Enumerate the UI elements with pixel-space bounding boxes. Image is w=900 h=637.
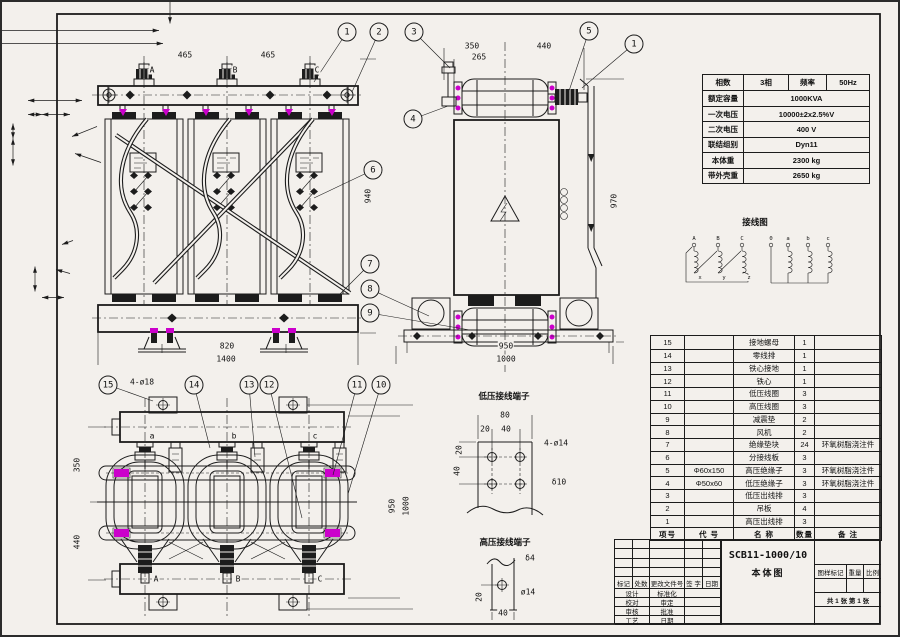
parts-cell-name: 风机 xyxy=(733,426,794,438)
sig-label: 工艺 xyxy=(615,616,650,625)
scale-label: 比例 xyxy=(864,565,881,579)
parts-cell-no: 15 xyxy=(651,336,684,349)
drawing-name: 本体图 xyxy=(722,566,814,579)
parts-cell-remark xyxy=(814,414,881,426)
parts-cell-remark xyxy=(814,490,881,502)
parts-cell-remark xyxy=(814,516,881,528)
parts-cell-code xyxy=(684,414,733,426)
parts-cell-code xyxy=(684,426,733,438)
parts-cell-qty: 24 xyxy=(794,439,814,451)
parts-cell-code xyxy=(684,452,733,464)
spec-label: 额定容量 xyxy=(703,91,743,105)
parts-cell-name: 高压出线排 xyxy=(733,516,794,528)
parts-cell-qty: 3 xyxy=(794,388,814,400)
spec-label: 本体重 xyxy=(703,153,743,167)
parts-cell-qty: 2 xyxy=(794,414,814,426)
parts-cell-qty: 3 xyxy=(794,401,814,413)
product-model: SCB11-1000/10 xyxy=(722,550,814,561)
parts-cell-name: 高压绝缘子 xyxy=(733,465,794,477)
spec-label: 联结组别 xyxy=(703,138,743,152)
parts-row: 10高压线圈3 xyxy=(651,400,881,413)
parts-cell-remark: 环氧树脂浇注件 xyxy=(814,439,881,451)
parts-cell-remark xyxy=(814,336,881,349)
parts-cell-qty: 3 xyxy=(794,465,814,477)
plan-view xyxy=(2,70,413,617)
spec-value: 10000±2x2.5%V xyxy=(743,107,869,121)
parts-row: 9减震垫2 xyxy=(651,413,881,426)
parts-cell-remark xyxy=(814,503,881,515)
parts-cell-name: 铁心 xyxy=(733,375,794,387)
spec-label: 一次电压 xyxy=(703,107,743,121)
parts-cell-name: 吊板 xyxy=(733,503,794,515)
spec-table: 相数 3相 频率 50Hz 额定容量1000KVA 一次电压10000±2x2.… xyxy=(702,74,870,184)
parts-cell-no: 13 xyxy=(651,363,684,375)
spec-value: 400 V xyxy=(743,122,869,136)
parts-cell-name: 高压线圈 xyxy=(733,401,794,413)
spec-value: 2650 kg xyxy=(743,169,869,183)
parts-row: 4Φ50x60低压绝缘子3环氧树脂浇注件 xyxy=(651,476,881,489)
parts-cell-remark xyxy=(814,375,881,387)
parts-cell-qty: 3 xyxy=(794,452,814,464)
parts-cell-code xyxy=(684,388,733,400)
front-view xyxy=(2,2,376,365)
sig-label: 审定 xyxy=(650,598,685,607)
parts-cell-remark: 环氧树脂浇注件 xyxy=(814,465,881,477)
spec-row: 二次电压400 V xyxy=(703,121,869,136)
parts-cell-code xyxy=(684,516,733,528)
parts-cell-remark xyxy=(814,452,881,464)
parts-cell-name: 低压线圈 xyxy=(733,388,794,400)
sig-label: 日期 xyxy=(650,616,685,625)
sig-label: 批准 xyxy=(650,607,685,616)
signature-rows: 设计标准化 校对审定 审核批准 工艺日期 xyxy=(615,589,721,625)
parts-row: 2吊板4 xyxy=(651,502,881,515)
parts-cell-code xyxy=(684,401,733,413)
title-block-right: 图样标记 重量 比例 共 1 张 第 1 张 xyxy=(815,540,881,625)
parts-cell-name: 分接线板 xyxy=(733,452,794,464)
sig-label: 设计 xyxy=(615,589,650,598)
parts-cell-remark xyxy=(814,401,881,413)
parts-cell-no: 3 xyxy=(651,490,684,502)
parts-table: 15接地螺母114零线排113铁心接地112铁心111低压线圈310高压线圈39… xyxy=(650,335,882,541)
parts-cell-no: 7 xyxy=(651,439,684,451)
parts-cell-qty: 1 xyxy=(794,336,814,349)
spec-row: 本体重2300 kg xyxy=(703,152,869,167)
parts-cell-code: Φ60x150 xyxy=(684,465,733,477)
parts-cell-code xyxy=(684,490,733,502)
parts-cell-code xyxy=(684,350,733,362)
spec-value: 1000KVA xyxy=(743,91,869,105)
sheet-count: 共 1 张 第 1 张 xyxy=(815,593,881,607)
col-count: 处数 xyxy=(633,577,650,589)
parts-cell-qty: 3 xyxy=(794,477,814,489)
side-view xyxy=(2,2,624,372)
parts-cell-remark xyxy=(814,350,881,362)
parts-cell-remark xyxy=(814,388,881,400)
spec-value: Dyn11 xyxy=(743,138,869,152)
parts-cell-no: 8 xyxy=(651,426,684,438)
parts-row: 5Φ60x150高压绝缘子3环氧树脂浇注件 xyxy=(651,464,881,477)
parts-cell-code: Φ50x60 xyxy=(684,477,733,489)
parts-cell-code xyxy=(684,503,733,515)
parts-cell-remark: 环氧树脂浇注件 xyxy=(814,477,881,489)
sig-label: 标准化 xyxy=(650,589,685,598)
parts-row: 12铁心1 xyxy=(651,374,881,387)
parts-cell-code xyxy=(684,363,733,375)
spec-row: 联结组别Dyn11 xyxy=(703,137,869,152)
title-area: SCB11-1000/10 本体图 xyxy=(721,540,815,625)
parts-cell-qty: 1 xyxy=(794,375,814,387)
parts-cell-no: 5 xyxy=(651,465,684,477)
revision-header-row: 标记 处数 更改文件号 签 字 日期 xyxy=(615,577,721,589)
parts-row: 1高压出线排3 xyxy=(651,515,881,528)
parts-row: 3低压出线排3 xyxy=(651,489,881,502)
parts-cell-name: 低压出线排 xyxy=(733,490,794,502)
parts-cell-qty: 1 xyxy=(794,363,814,375)
parts-cell-no: 12 xyxy=(651,375,684,387)
sig-label: 审核 xyxy=(615,607,650,616)
wiring-diagram xyxy=(686,243,832,283)
parts-cell-no: 1 xyxy=(651,516,684,528)
col-date: 日期 xyxy=(703,577,721,589)
parts-cell-remark xyxy=(814,426,881,438)
parts-row: 8风机2 xyxy=(651,425,881,438)
parts-cell-no: 11 xyxy=(651,388,684,400)
spec-row: 带外壳重2650 kg xyxy=(703,168,869,183)
parts-cell-code xyxy=(684,336,733,349)
parts-cell-qty: 3 xyxy=(794,490,814,502)
parts-cell-no: 2 xyxy=(651,503,684,515)
parts-cell-code xyxy=(684,375,733,387)
parts-cell-no: 10 xyxy=(651,401,684,413)
parts-cell-no: 14 xyxy=(651,350,684,362)
parts-cell-name: 零线排 xyxy=(733,350,794,362)
spec-row: 相数 3相 频率 50Hz xyxy=(703,75,869,90)
parts-cell-no: 4 xyxy=(651,477,684,489)
drawing-sheet: 相数 3相 频率 50Hz 额定容量1000KVA 一次电压10000±2x2.… xyxy=(0,0,900,637)
parts-cell-name: 低压绝缘子 xyxy=(733,477,794,489)
parts-cell-qty: 2 xyxy=(794,426,814,438)
spec-cell: 相数 xyxy=(703,75,743,90)
spec-cell: 3相 xyxy=(743,75,788,90)
parts-cell-qty: 4 xyxy=(794,503,814,515)
lv-terminal-detail xyxy=(13,101,543,516)
spec-cell: 频率 xyxy=(788,75,826,90)
stamp-label: 图样标记 xyxy=(815,565,847,579)
parts-row: 14零线排1 xyxy=(651,349,881,362)
parts-row: 7绝缘垫块24环氧树脂浇注件 xyxy=(651,438,881,451)
parts-cell-no: 6 xyxy=(651,452,684,464)
revision-grid xyxy=(615,540,721,577)
col-sign: 签 字 xyxy=(685,577,703,589)
title-block: 标记 处数 更改文件号 签 字 日期 设计标准化 校对审定 审核批准 工艺日期 … xyxy=(614,539,880,624)
col-mark: 标记 xyxy=(615,577,633,589)
spec-cell: 50Hz xyxy=(826,75,869,90)
spec-label: 二次电压 xyxy=(703,122,743,136)
parts-cell-no: 9 xyxy=(651,414,684,426)
parts-cell-name: 铁心接地 xyxy=(733,363,794,375)
spec-row: 一次电压10000±2x2.5%V xyxy=(703,106,869,121)
col-doc: 更改文件号 xyxy=(650,577,685,589)
parts-cell-name: 减震垫 xyxy=(733,414,794,426)
parts-cell-name: 接地螺母 xyxy=(733,336,794,349)
sig-label: 校对 xyxy=(615,598,650,607)
parts-row: 13铁心接地1 xyxy=(651,362,881,375)
weight-label: 重量 xyxy=(847,565,864,579)
parts-row: 6分接线板3 xyxy=(651,451,881,464)
spec-value: 2300 kg xyxy=(743,153,869,167)
hv-terminal-detail xyxy=(35,241,517,621)
parts-cell-qty: 3 xyxy=(794,516,814,528)
spec-row: 额定容量1000KVA xyxy=(703,90,869,105)
spec-label: 带外壳重 xyxy=(703,169,743,183)
parts-cell-code xyxy=(684,439,733,451)
parts-cell-remark xyxy=(814,363,881,375)
parts-cell-name: 绝缘垫块 xyxy=(733,439,794,451)
parts-row: 11低压线圈3 xyxy=(651,387,881,400)
parts-cell-qty: 1 xyxy=(794,350,814,362)
parts-row: 15接地螺母1 xyxy=(651,336,881,349)
